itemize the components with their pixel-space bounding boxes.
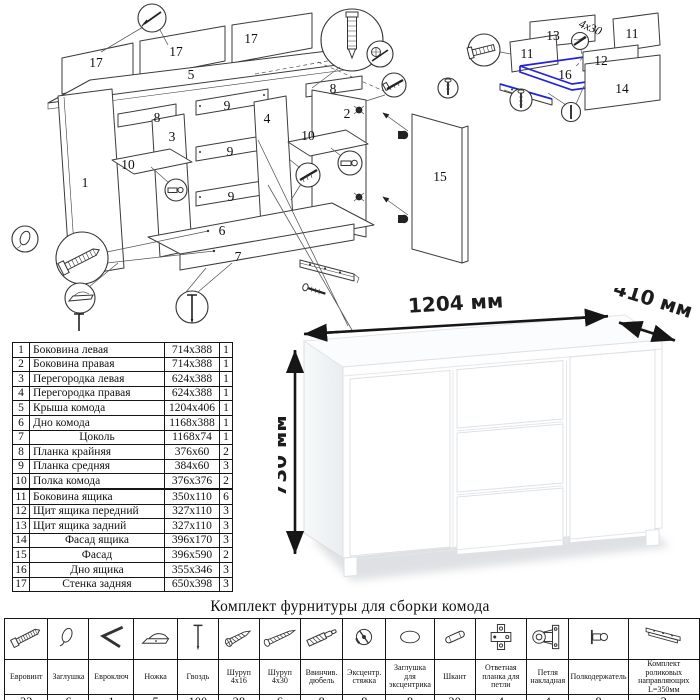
part-number-label: 4 (264, 111, 271, 126)
part-number: 12 (13, 504, 30, 519)
screw-4x16-icon (219, 620, 259, 654)
hardware-icon-cell (343, 619, 386, 660)
part-number-label: 13 (546, 28, 560, 43)
hardware-qty: 28 (218, 695, 259, 700)
hardware-name: Шуруп 4x16 (218, 660, 259, 695)
part-qty: 3 (220, 519, 233, 534)
plug-callout-icon (12, 226, 38, 252)
hardware-icon-cell (527, 619, 569, 660)
part-name: Дно ящика (30, 562, 165, 577)
table-row: 4Перегородка правая624x3881 (13, 386, 233, 401)
part-name: Полка комода (30, 474, 165, 489)
hardware-name: Ввинчив. дюбель (300, 660, 342, 695)
part-qty: 3 (220, 504, 233, 519)
part-name: Щит ящика задний (30, 519, 165, 534)
hardware-qty: 100 (177, 695, 218, 700)
table-row: 14Фасад ящика396x1703 (13, 533, 233, 548)
hardware-icon-cell (300, 619, 342, 660)
part-size: 624x388 (165, 386, 220, 401)
part-name: Планка крайняя (30, 445, 165, 460)
part-name: Боковина ящика (30, 490, 165, 505)
part-number: 16 (13, 562, 30, 577)
table-row: 6Дно комода1168x3881 (13, 415, 233, 430)
cabinet-exploded-view (12, 4, 468, 331)
part-number: 6 (13, 415, 30, 430)
part-size: 1168x74 (165, 430, 220, 445)
part-name: Фасад (30, 548, 165, 563)
table-row: 5Крыша комода1204x4061 (13, 401, 233, 416)
table-row: 3Перегородка левая624x3881 (13, 372, 233, 387)
part-size: 376x376 (165, 474, 220, 489)
foot-icon (136, 620, 176, 654)
part-number: 11 (13, 490, 30, 505)
part-number-label: 11 (626, 26, 639, 41)
screw-callout-icon (438, 78, 458, 98)
part-number-label: 17 (89, 55, 103, 70)
part-name: Фасад ящика (30, 533, 165, 548)
hardware-qty: 4 (475, 695, 526, 700)
part-qty: 2 (220, 445, 233, 460)
part-qty: 3 (220, 533, 233, 548)
part-qty: 1 (220, 401, 233, 416)
hardware-name: Заглушка для эксцентрика (386, 660, 434, 695)
part-qty: 2 (220, 548, 233, 563)
part-name: Боковина правая (30, 357, 165, 372)
drawer-front-1 (457, 361, 563, 428)
hardware-name-row: ЕвровинтЗаглушкаЕвроключНожкаГвоздьШуруп… (5, 660, 700, 695)
table-row: 1Боковина левая714x3881 (13, 343, 233, 358)
parts-table-cabinet: 1Боковина левая714x38812Боковина правая7… (12, 342, 233, 489)
dresser-body (304, 315, 670, 581)
hardware-name: Петля накладная (527, 660, 569, 695)
hardware-icon-cell (218, 619, 259, 660)
euroscrew-icon (6, 620, 46, 654)
hardware-icon-cell (434, 619, 475, 660)
hardware-icon-cell (5, 619, 48, 660)
euroscrew-callout-icon (366, 73, 406, 101)
part-number-label: 8 (330, 81, 337, 96)
part-number-label: 9 (224, 98, 231, 113)
part-qty: 6 (220, 490, 233, 505)
part-number-label: 1 (82, 175, 89, 190)
width-dimension-label: 1204 мм (407, 288, 504, 317)
hardware-name: Ответная планка для петли (475, 660, 526, 695)
part-name: Дно комода (30, 415, 165, 430)
table-row: 9Планка средняя384x603 (13, 459, 233, 474)
part-number-label: 10 (121, 157, 135, 172)
hardware-name: Шкант (434, 660, 475, 695)
part-qty: 1 (220, 386, 233, 401)
hardware-icon-cell (48, 619, 89, 660)
part-qty: 3 (220, 459, 233, 474)
part-number: 5 (13, 401, 30, 416)
part-number: 9 (13, 459, 30, 474)
part-name: Перегородка правая (30, 386, 165, 401)
part-size: 714x388 (165, 357, 220, 372)
part-number-label: 6 (219, 223, 226, 238)
table-row: 8Планка крайняя376x602 (13, 445, 233, 460)
roller-guide-rail (300, 260, 359, 283)
hardware-name: Евровинт (5, 660, 48, 695)
parts-table-drawers: 11Боковина ящика350x110612Щит ящика пере… (12, 489, 233, 592)
part-number: 10 (13, 474, 30, 489)
hardware-icon-row (5, 619, 700, 660)
hardware-icon-cell (386, 619, 434, 660)
hardware-icon-cell (89, 619, 134, 660)
part-qty: 1 (220, 343, 233, 358)
hardware-kit-title: Комплект фурнитуры для сборки комода (0, 598, 700, 616)
part-size: 376x60 (165, 445, 220, 460)
hardware-icon-cell (259, 619, 300, 660)
hardware-qty: 8 (569, 695, 628, 700)
part-number-label: 5 (188, 67, 195, 82)
hardware-qty: 8 (386, 695, 434, 700)
part-name: Перегородка левая (30, 372, 165, 387)
part-qty: 1 (220, 372, 233, 387)
cam-icon (344, 620, 384, 654)
hardware-kit-table: ЕвровинтЗаглушкаЕвроключНожкаГвоздьШуруп… (4, 618, 700, 700)
shkant-icon (435, 620, 475, 654)
part-qty: 3 (220, 577, 233, 592)
table-row: 2Боковина правая714x3881 (13, 357, 233, 372)
hardware-qty: 1 (89, 695, 134, 700)
hardware-qty: 5 (134, 695, 177, 700)
table-row: 16Дно ящика355x3463 (13, 562, 233, 577)
part-name: Щит ящика передний (30, 504, 165, 519)
part-number: 2 (13, 357, 30, 372)
part-qty: 1 (220, 357, 233, 372)
part-number-label: 17 (244, 31, 258, 46)
part-size: 714x388 (165, 343, 220, 358)
part-size: 396x170 (165, 533, 220, 548)
hardware-qty: 6 (48, 695, 89, 700)
hinge-icon (528, 620, 568, 654)
cam-plug-icon (390, 620, 430, 654)
hardware-name: Шуруп 4x30 (259, 660, 300, 695)
part-number: 4 (13, 386, 30, 401)
part-name: Цоколь (30, 430, 165, 445)
euroscrew-callout-icon (467, 34, 511, 66)
right-door (570, 350, 655, 543)
part-number-label: 17 (169, 44, 183, 59)
hardware-qty: 4 (527, 695, 569, 700)
table-row: 17Стенка задняя650x3983 (13, 577, 233, 592)
part-size: 350x110 (165, 490, 220, 505)
dowel-icon (302, 620, 342, 654)
hardware-qty: 22 (5, 695, 48, 700)
part-number-label: 15 (433, 169, 447, 184)
part-size: 384x60 (165, 459, 220, 474)
part-number-label: 2 (344, 106, 351, 121)
hardware-name: Полкодержатель (569, 660, 628, 695)
part-name: Планка средняя (30, 459, 165, 474)
table-row: 7Цоколь1168x741 (13, 430, 233, 445)
hardware-name: Комплект роликовых направляющих L=350мм (628, 660, 699, 695)
hardware-icon-cell (134, 619, 177, 660)
part-size: 327x110 (165, 519, 220, 534)
plug-icon (48, 620, 88, 654)
left-door (350, 371, 450, 557)
part-number-label: 3 (169, 129, 176, 144)
table-row: 12Щит ящика передний327x1103 (13, 504, 233, 519)
hexkey-icon (91, 620, 131, 654)
part-number-label: 16 (558, 67, 572, 82)
table-row: 15Фасад396x5902 (13, 548, 233, 563)
hardware-name: Эксцентр. стяжка (343, 660, 386, 695)
hardware-qty: 6 (259, 695, 300, 700)
hinge-plate-icon (481, 620, 521, 654)
part-name: Крыша комода (30, 401, 165, 416)
part-name: Стенка задняя (30, 577, 165, 592)
part-number: 7 (13, 430, 30, 445)
part-size: 396x590 (165, 548, 220, 563)
roller-guides-icon (644, 620, 684, 654)
hardware-icon-cell (177, 619, 218, 660)
part-qty: 1 (220, 415, 233, 430)
part-number: 1 (13, 343, 30, 358)
height-dimension-label: 730 мм (278, 415, 291, 496)
hardware-qty: 20 (434, 695, 475, 700)
drawer-front-2 (457, 424, 563, 492)
part-number-label: 8 (154, 110, 161, 125)
table-row: 13Щит ящика задний327x1103 (13, 519, 233, 534)
hardware-qty-row: 22615100286888204483 (5, 695, 700, 700)
part-number: 8 (13, 445, 30, 460)
part-number-label: 11 (521, 46, 534, 61)
shelf-pin-icon (579, 620, 619, 654)
part-number: 15 (13, 548, 30, 563)
assembly-instruction-sheet: .p{fill:#fff;stroke:#3b3b3b;stroke-width… (0, 0, 700, 700)
part-number-label: 9 (227, 144, 234, 159)
part-number: 14 (13, 533, 30, 548)
part-number-label: 12 (594, 53, 608, 68)
part-qty: 1 (220, 430, 233, 445)
part-number-label: 10 (301, 128, 315, 143)
hardware-name: Ножка (134, 660, 177, 695)
hardware-qty: 8 (343, 695, 386, 700)
part-size: 1168x388 (165, 415, 220, 430)
screw-callout-icon (548, 86, 584, 122)
hardware-name: Евроключ (89, 660, 134, 695)
screw-4x30-icon (260, 620, 300, 654)
part-number-label: 7 (235, 249, 242, 264)
part-number: 3 (13, 372, 30, 387)
part-size: 355x346 (165, 562, 220, 577)
hardware-icon-cell (569, 619, 628, 660)
part-size: 650x398 (165, 577, 220, 592)
nail-callout-icon (176, 263, 232, 324)
part-size: 1204x406 (165, 401, 220, 416)
table-row: 10Полка комода376x3762 (13, 474, 233, 489)
table-row: 11Боковина ящика350x1106 (13, 490, 233, 505)
part-qty: 2 (220, 474, 233, 489)
nail-icon (178, 620, 218, 654)
cam-callout-icon (367, 41, 393, 67)
part-number-label: 9 (228, 189, 235, 204)
hardware-qty: 3 (628, 695, 699, 700)
hardware-qty: 8 (300, 695, 342, 700)
part-name: Боковина левая (30, 343, 165, 358)
hardware-name: Заглушка (48, 660, 89, 695)
dresser-render: .dim{stroke:#161616;stroke-width:2.6;fil… (278, 288, 700, 600)
part-number-label: 14 (615, 81, 629, 96)
part-number: 17 (13, 577, 30, 592)
part-size: 327x110 (165, 504, 220, 519)
hardware-name: Гвоздь (177, 660, 218, 695)
part-size: 624x388 (165, 372, 220, 387)
part-number: 13 (13, 519, 30, 534)
hardware-icon-cell (475, 619, 526, 660)
hardware-icon-cell (628, 619, 699, 660)
part-qty: 3 (220, 562, 233, 577)
